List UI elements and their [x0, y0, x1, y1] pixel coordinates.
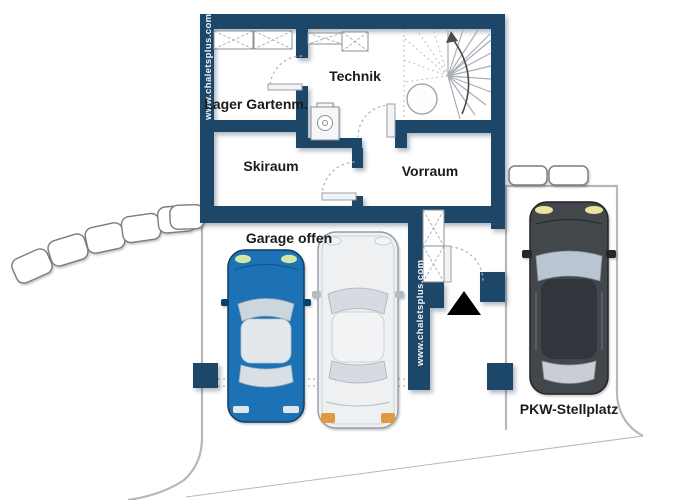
stair-newel-circle — [407, 84, 437, 114]
wall-bottom — [200, 206, 505, 223]
room-label-garage: Garage offen — [246, 230, 332, 246]
watermark-garage-wall: www.chaletsplus.com — [415, 260, 426, 368]
washer-drum — [318, 116, 333, 131]
floor-plan-page: www.chaletsplus.com www.chaletsplus.com … — [0, 0, 700, 500]
wall-right — [491, 14, 505, 229]
door-leaf-lager — [268, 84, 302, 90]
door-arc-lager — [270, 56, 302, 88]
car-headlight — [235, 255, 251, 263]
door-arc-skiraum — [322, 162, 356, 196]
site-boundary-line — [186, 436, 643, 497]
car-mirror — [221, 299, 229, 306]
washing-machine-icon — [311, 103, 339, 140]
room-label-skiraum: Skiraum — [243, 158, 298, 174]
door-leaf-technik — [387, 104, 395, 137]
car-mirror — [606, 250, 616, 258]
car-mirror — [395, 291, 404, 298]
car-blue — [221, 250, 311, 422]
parking-stone — [549, 166, 588, 185]
car-dark — [522, 202, 616, 394]
car-headlight — [375, 237, 391, 245]
car-mirror — [312, 291, 321, 298]
wall-stair-step — [395, 120, 407, 148]
door-arc-technik — [358, 105, 391, 137]
entrance-triangle-icon — [447, 291, 481, 315]
door-leaf-skiraum — [322, 193, 356, 200]
car-silver — [312, 232, 404, 428]
car-mirror — [303, 299, 311, 306]
room-label-vorraum: Vorraum — [402, 163, 459, 179]
car-headlight — [535, 206, 553, 214]
car-mirror — [522, 250, 532, 258]
wall-pier-entry — [480, 272, 505, 302]
shaft — [423, 210, 444, 282]
storage-units — [214, 31, 368, 51]
wall-pier-garage — [193, 363, 218, 388]
stepping-stone — [120, 212, 161, 243]
room-label-lager: Lager Gartenm. — [204, 96, 307, 112]
stepping-stone — [9, 246, 54, 285]
car-headlight — [281, 255, 297, 263]
parking-stone — [509, 166, 547, 185]
car-taillight — [381, 413, 395, 423]
door-leaf-entry — [444, 246, 451, 282]
wall-lager-bottom — [214, 120, 308, 132]
wall-lager-divider-top — [296, 29, 308, 58]
door-arc-entry — [450, 247, 483, 281]
wall-pier-right — [487, 363, 513, 390]
driveway-edge — [128, 226, 202, 500]
room-label-stellplatz: PKW-Stellplatz — [520, 401, 619, 417]
car-roof — [241, 319, 291, 363]
stepping-stone — [46, 232, 90, 268]
wall-top — [200, 14, 505, 29]
wall-garage-jog — [430, 282, 444, 308]
car-taillight — [283, 406, 299, 413]
stepping-stone — [170, 204, 205, 229]
room-label-technik: Technik — [329, 68, 381, 84]
wall-skiraum-divider — [352, 148, 363, 168]
car-taillight — [321, 413, 335, 423]
car-headlight — [585, 206, 603, 214]
car-roof — [332, 312, 384, 362]
stepping-stone — [84, 221, 127, 254]
car-roof — [541, 279, 597, 359]
staircase — [404, 30, 491, 119]
floor-plan-drawing: www.chaletsplus.com www.chaletsplus.com … — [0, 0, 700, 500]
car-taillight — [233, 406, 249, 413]
